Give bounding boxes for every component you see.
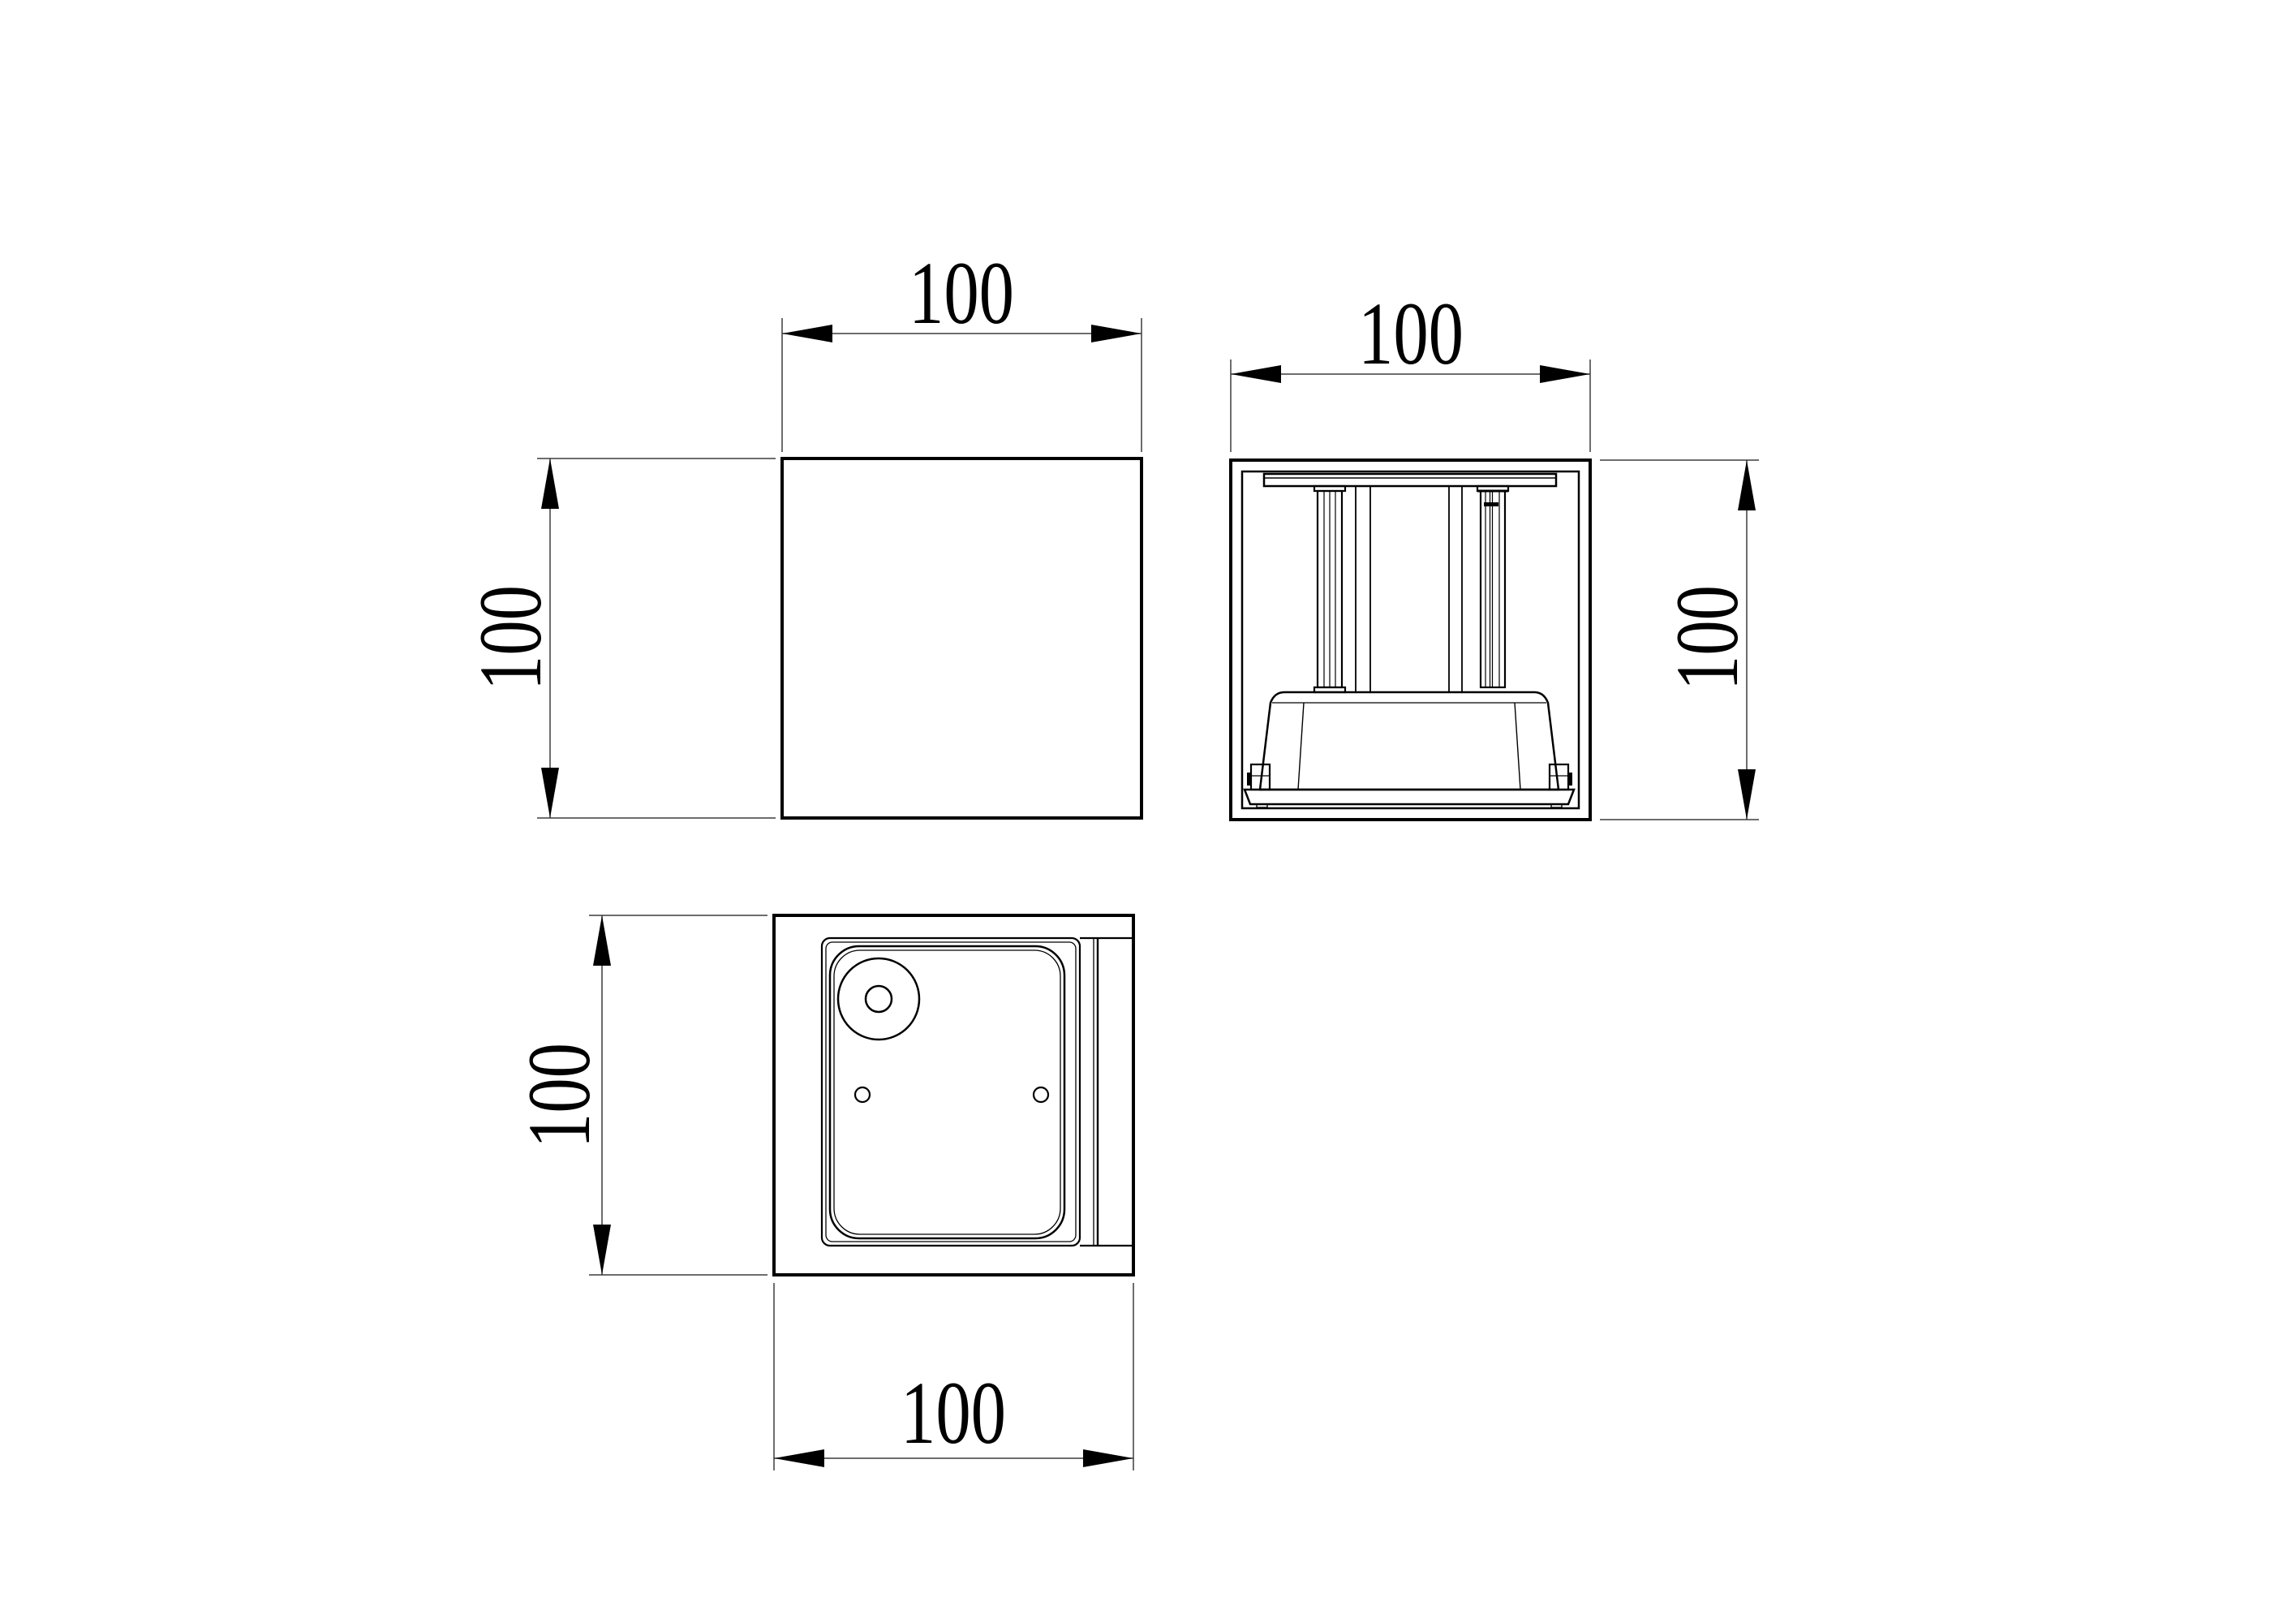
tie-rod — [1356, 486, 1370, 692]
lamp-boss-circle — [838, 958, 919, 1040]
technical-drawing-page: 100 100 — [0, 0, 2296, 1623]
arrowhead-left — [774, 1449, 824, 1467]
screw-collar — [1484, 502, 1498, 506]
arrowhead-down — [1738, 769, 1756, 820]
bottom-plate — [1245, 790, 1574, 804]
arrowhead-down — [541, 768, 559, 818]
dim-bottom-width: 100 — [774, 1283, 1133, 1470]
holes — [838, 958, 1048, 1102]
left-clip-tab — [1247, 773, 1251, 786]
plate-outline — [1264, 474, 1556, 486]
arrowhead-left — [782, 325, 832, 342]
screw-hole-right — [1034, 1087, 1048, 1102]
post-flutes — [1324, 491, 1335, 687]
dim-front-width: 100 — [782, 243, 1142, 452]
side-band-edges — [1080, 938, 1133, 1246]
dimension-text: 100 — [510, 1043, 608, 1148]
bottom-plate-foot — [1257, 804, 1267, 807]
lens-outer-edge — [830, 946, 1064, 1238]
dim-bottom-height: 100 — [510, 915, 767, 1275]
driver-base — [1245, 692, 1574, 807]
side-section-view — [1231, 460, 1590, 820]
tie-rod — [1449, 486, 1462, 692]
dimension-text: 100 — [909, 243, 1014, 342]
dim-side-width: 100 — [1231, 284, 1590, 452]
front-view-outline — [782, 458, 1142, 818]
dimension-text: 100 — [1658, 585, 1756, 691]
screw-shaft — [1490, 491, 1493, 687]
right-clip-tab — [1568, 773, 1572, 786]
side-view-outline — [1231, 460, 1590, 820]
bottom-view — [774, 915, 1133, 1275]
dim-front-height: 100 — [461, 458, 776, 818]
lamp-hole-circle — [866, 986, 892, 1012]
arrowhead-right — [1091, 325, 1142, 342]
dim-side-height: 100 — [1600, 460, 1759, 820]
arrowhead-up — [541, 458, 559, 509]
tie-rods — [1356, 486, 1462, 692]
three-view-cad-drawing: 100 100 — [0, 0, 2296, 1623]
right-post — [1477, 486, 1508, 687]
recess-outer-edge — [822, 938, 1080, 1246]
left-post — [1314, 486, 1345, 692]
recess-inner-edge — [826, 942, 1076, 1242]
base-outline — [1260, 692, 1559, 790]
dimension-text: 100 — [461, 585, 560, 691]
base-seams — [1298, 703, 1520, 790]
arrowhead-right — [1540, 365, 1590, 383]
arrowhead-up — [1738, 460, 1756, 510]
housing-inner-wall — [1242, 471, 1579, 808]
arrowhead-up — [593, 915, 611, 966]
arrowhead-right — [1083, 1449, 1133, 1467]
arrowhead-left — [1231, 365, 1281, 383]
mounting-plate — [1264, 474, 1556, 486]
bottom-plate-foot — [1551, 804, 1562, 807]
dimension-text: 100 — [1358, 284, 1464, 383]
screw-hole-left — [855, 1087, 870, 1102]
dimension-text: 100 — [901, 1363, 1006, 1462]
front-view — [782, 458, 1142, 818]
arrowhead-down — [593, 1225, 611, 1275]
lens-panel — [830, 946, 1064, 1238]
